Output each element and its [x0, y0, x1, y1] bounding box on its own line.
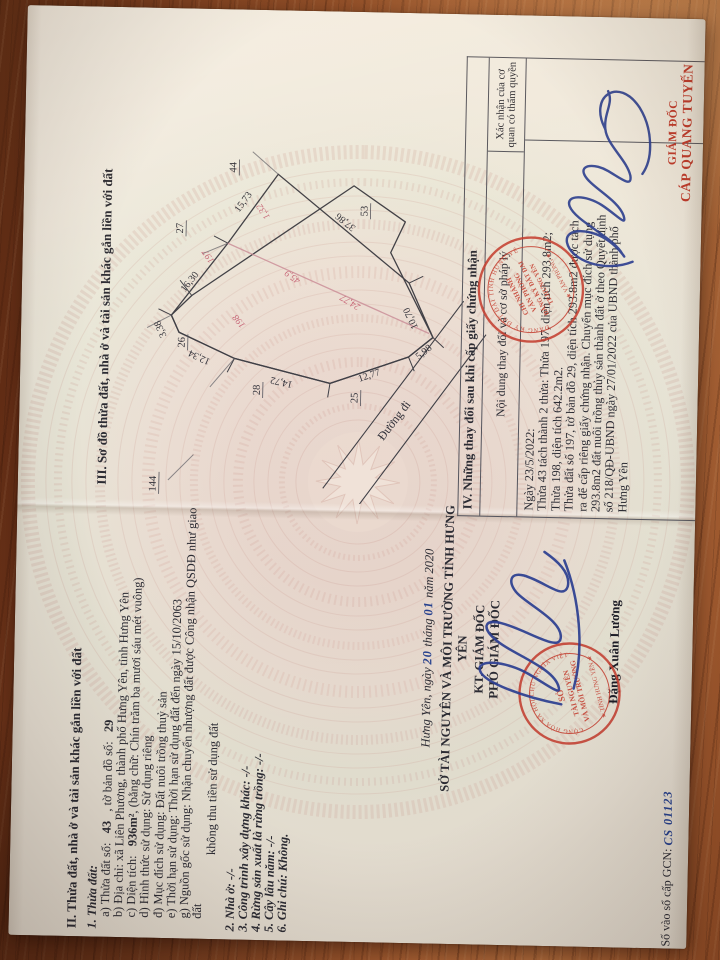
- svg-text:144: 144: [148, 475, 159, 492]
- svg-text:27: 27: [175, 223, 186, 234]
- section-2-parcel-info: II. Thửa đất, nhà ở và tài sản khác gắn …: [64, 500, 297, 933]
- parcel-boundary: [170, 182, 436, 385]
- svg-text:26: 26: [177, 337, 188, 348]
- svg-text:14,72: 14,72: [269, 374, 293, 390]
- road-label: Đường đi: [375, 397, 414, 443]
- director-confirmation: GIÁM ĐỐC CÁP QUANG TUYẾN: [665, 37, 697, 228]
- vertex-ticks: [157, 235, 446, 400]
- director-signature: [544, 54, 661, 280]
- svg-text:12,77: 12,77: [357, 367, 382, 385]
- parcel-number-value: 43: [100, 821, 114, 834]
- handwritten-month: 01: [421, 601, 436, 616]
- red-split-line: [226, 243, 431, 333]
- date-middle: tháng: [420, 618, 435, 647]
- svg-text:44: 44: [228, 161, 239, 172]
- neighbor-boundary-stubs: [144, 150, 279, 483]
- parcel-outline-main: [170, 172, 436, 385]
- gcn-label: Số vào sổ cấp GCN:: [658, 848, 674, 946]
- handwritten-day: 20: [420, 650, 435, 665]
- svg-text:53: 53: [359, 206, 370, 217]
- svg-text:10,70: 10,70: [401, 306, 420, 331]
- land-certificate-paper: II. Thửa đất, nhà ở và tài sản khác gắn …: [8, 5, 705, 949]
- document-content: II. Thửa đất, nhà ở và tài sản khác gắn …: [8, 5, 705, 949]
- svg-text:37,86: 37,86: [334, 210, 358, 233]
- deputy-director-signature: [465, 536, 597, 719]
- date-prefix: Hưng Yên, ngày: [418, 667, 434, 747]
- column-header-confirmation: Xác nhận của cơ quan có thẩm quyền: [488, 58, 526, 152]
- parcel-sketch-diagram: Đường đi 15,73 16,30 3,38 12,34 14,72 12…: [137, 30, 495, 507]
- svg-text:198: 198: [231, 312, 248, 330]
- svg-text:12,34: 12,34: [187, 347, 212, 367]
- gcn-handwritten-value: CS 01123: [661, 790, 677, 845]
- svg-text:25: 25: [350, 393, 361, 404]
- svg-text:28: 28: [252, 385, 263, 396]
- svg-text:3,38: 3,38: [152, 319, 169, 339]
- date-suffix: năm 2020: [421, 549, 436, 599]
- svg-text:1,32: 1,32: [255, 201, 273, 221]
- svg-text:5,98: 5,98: [414, 343, 435, 363]
